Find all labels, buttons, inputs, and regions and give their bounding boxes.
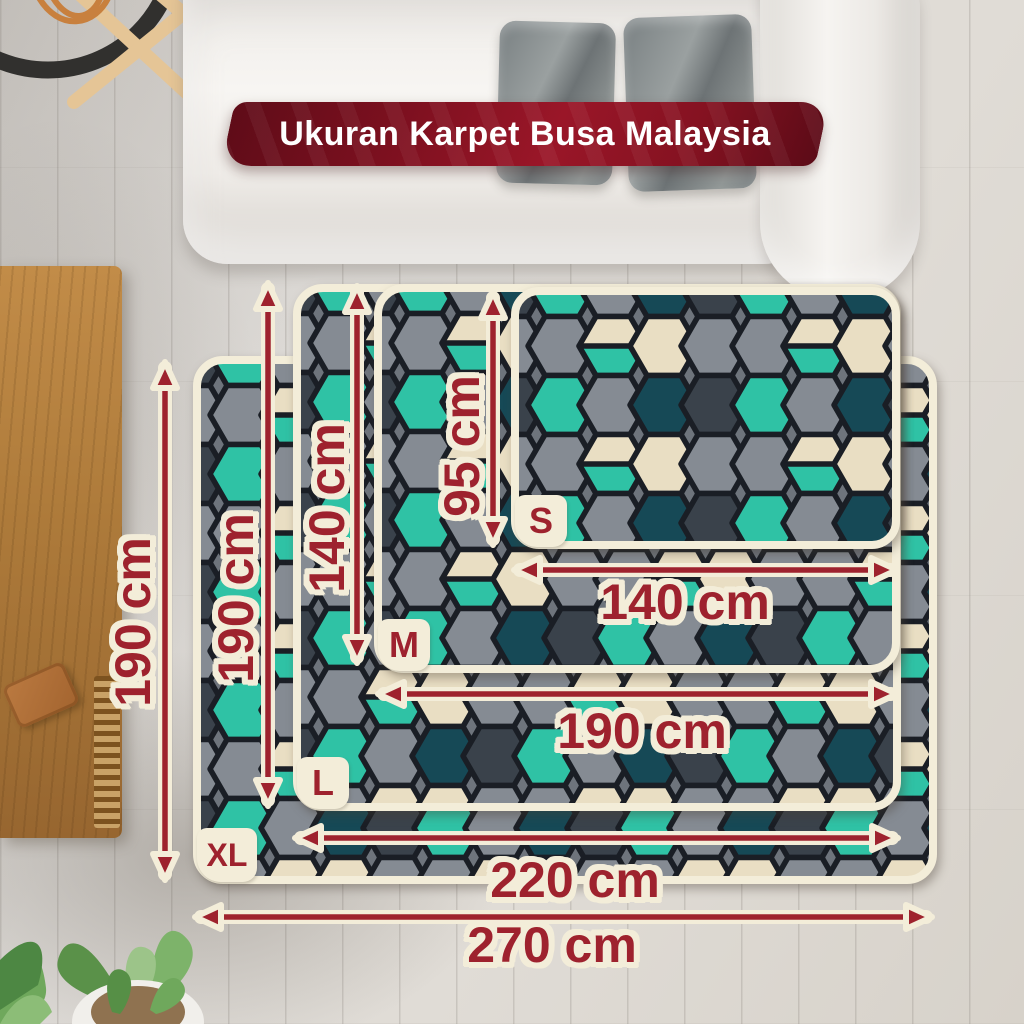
size-badge-xl: XL <box>197 828 257 882</box>
label-m-height: 140 cm <box>298 423 356 593</box>
leather-wallet <box>1 661 80 730</box>
size-badge-s: S <box>515 495 567 547</box>
size-badge-l: L <box>297 757 349 809</box>
size-badge-m: M <box>378 619 430 671</box>
carpet-s <box>511 287 900 549</box>
label-m-width: 190 cm <box>557 702 727 760</box>
label-l-width: 220 cm <box>490 851 660 909</box>
label-l-height: 190 cm <box>207 513 265 683</box>
title-banner: Ukuran Karpet Busa Malaysia <box>228 102 822 166</box>
label-xl-width: 270 cm <box>467 916 637 974</box>
label-s-width: 140 cm <box>600 573 770 631</box>
banner-title: Ukuran Karpet Busa Malaysia <box>228 102 822 166</box>
label-xl-height: 190 cm <box>104 537 162 707</box>
label-s-height: 95 cm <box>433 375 491 517</box>
product-infographic: Ukuran Karpet Busa Malaysia S M L XL <box>0 0 1024 1024</box>
